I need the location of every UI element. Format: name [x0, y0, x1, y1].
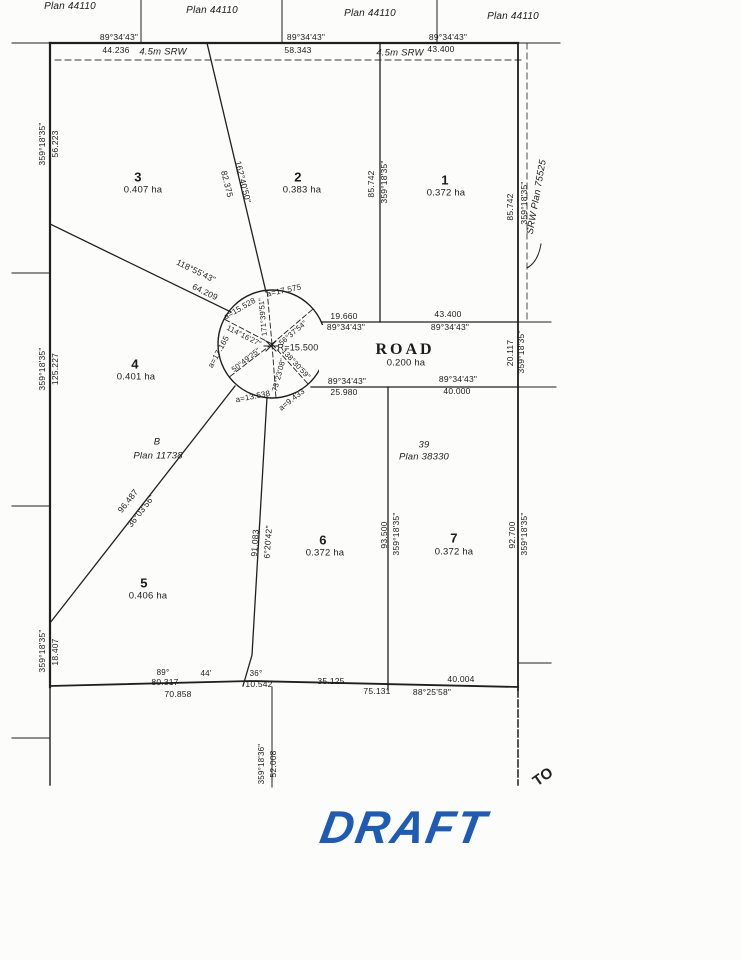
distance-label: 92.700: [508, 521, 517, 548]
distance-label: 43.400: [434, 310, 461, 319]
bearing-label: 359°18'35": [38, 629, 47, 672]
bearing-label: 359°18'36": [258, 744, 266, 785]
lot-number: 6: [319, 534, 326, 547]
distance-label: 85.742: [506, 193, 515, 220]
bearing-label: 89°34'43": [328, 377, 366, 386]
plan-ref-label: Plan 11738: [133, 451, 182, 461]
road-area: 0.200 ha: [387, 358, 426, 368]
srw-dashed-lines: [55, 43, 527, 322]
bearing-label: 44': [200, 670, 211, 678]
srw-label: 4.5m SRW: [139, 47, 186, 57]
plan-ref-label: B: [154, 437, 161, 447]
distance-label: 58.343: [284, 46, 311, 55]
lot-area: 0.401 ha: [117, 372, 156, 382]
lot-number: 3: [134, 171, 141, 184]
bearing-label: 359°18'35": [520, 512, 529, 555]
distance-label: 52.008: [269, 750, 278, 777]
bearing-label: 89°34'43": [429, 33, 467, 42]
center-mark: [264, 341, 278, 351]
survey-plan-page: Plan 44110Plan 44110Plan 44110Plan 44110…: [0, 0, 741, 960]
bearing-label: 6°20'42": [263, 525, 274, 559]
lot-area: 0.407 ha: [124, 185, 163, 195]
bearing-label: 89°34'43": [431, 323, 469, 332]
distance-label: 85.742: [367, 170, 376, 197]
plan-ref-label: 39: [419, 440, 430, 450]
lot-number: 1: [441, 174, 448, 187]
distance-label: 70.858: [164, 690, 191, 699]
distance-label: 19.660: [330, 312, 357, 321]
distance-label: 125.227: [51, 353, 60, 385]
distance-label: 40.000: [443, 387, 470, 396]
lot-area: 0.372 ha: [427, 188, 466, 198]
distance-label: 44.236: [102, 46, 129, 55]
distance-label: 40.004: [447, 675, 474, 684]
adjacent-plan-label: Plan 44110: [186, 6, 238, 16]
bearing-label: 359°18'35": [517, 330, 526, 373]
distance-label: 43.400: [427, 45, 454, 54]
bearing-label: 359°18'35": [380, 160, 389, 203]
distance-label: 56.223: [51, 130, 60, 157]
survey-ticks: [12, 0, 560, 787]
distance-label: 25.980: [330, 388, 357, 397]
srw-label: 4.5m SRW: [376, 48, 423, 58]
lot-area: 0.383 ha: [283, 185, 322, 195]
lot-number: 7: [450, 532, 457, 545]
distance-label: 35.125: [317, 677, 344, 686]
distance-label: 18.407: [51, 638, 60, 665]
distance-label: 75.131: [363, 687, 390, 696]
adjacent-plan-label: Plan 44110: [487, 12, 539, 22]
bearing-label: 89°34'43": [100, 33, 138, 42]
adjacent-plan-label: Plan 44110: [344, 9, 396, 19]
lot-area: 0.372 ha: [435, 547, 474, 557]
road-name: ROAD: [375, 342, 434, 358]
adjacent-plan-label: Plan 44110: [44, 2, 96, 12]
bearing-label: 359°18'35": [38, 347, 47, 390]
lot-number: 2: [294, 171, 301, 184]
bearing-label: 89°34'43": [439, 375, 477, 384]
lot-area: 0.372 ha: [306, 548, 345, 558]
bearing-label: 89°34'43": [327, 323, 365, 332]
bearing-label: 359°18'35": [392, 512, 401, 555]
distance-label: 93.500: [380, 521, 389, 548]
lot-number: 5: [140, 577, 147, 590]
bearing-label: 89°34'43": [287, 33, 325, 42]
lot-number: 4: [131, 358, 138, 371]
bearing-label: 359°18'35": [38, 122, 47, 165]
draft-watermark: DRAFT: [316, 800, 491, 854]
distance-label: 91.083: [250, 529, 260, 557]
srw-leader-line: [527, 244, 541, 268]
bearing-label: 88°25'58": [413, 688, 451, 697]
bearing-label: 36°: [250, 670, 263, 678]
plan-ref-label: Plan 38330: [399, 452, 449, 462]
distance-label: 20.117: [506, 340, 515, 367]
distance-label: 80.317: [151, 678, 178, 687]
distance-label: 10.542: [245, 680, 272, 689]
lot-area: 0.406 ha: [129, 591, 168, 601]
